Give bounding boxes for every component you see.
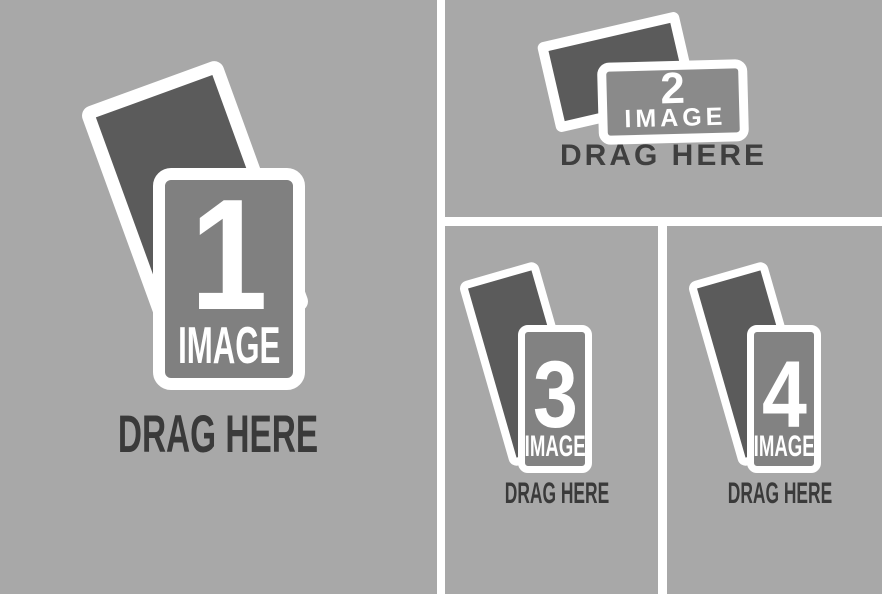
photo-front-frame-icon: 3 IMAGE <box>518 325 592 473</box>
image-label: IMAGE <box>624 105 727 133</box>
drag-here-label: DRAG HERE <box>445 139 882 173</box>
image-label: IMAGE <box>525 432 586 462</box>
zone-number: 1 <box>190 192 267 318</box>
zone-number: 3 <box>533 358 578 432</box>
photo-front-frame-icon: 1 IMAGE <box>153 168 305 390</box>
photo-front-frame-icon: 2 IMAGE <box>597 59 749 145</box>
image-label: IMAGE <box>754 432 815 462</box>
image-drop-zone-2[interactable]: 2 IMAGE DRAG HERE <box>445 0 882 217</box>
image-drop-zone-3[interactable]: 3 IMAGE DRAG HERE <box>445 226 658 594</box>
image-drop-zone-4[interactable]: 4 IMAGE DRAG HERE <box>667 226 882 594</box>
drag-here-label: DRAG HERE <box>680 477 880 511</box>
zone-number: 2 <box>660 71 685 107</box>
collage-template: 1 IMAGE DRAG HERE 2 IMAGE DRAG HERE 3 IM… <box>0 0 882 594</box>
drag-here-label: DRAG HERE <box>0 404 437 465</box>
drag-here-label: DRAG HERE <box>457 477 657 511</box>
zone-number: 4 <box>762 358 807 432</box>
image-drop-zone-1[interactable]: 1 IMAGE DRAG HERE <box>0 0 437 594</box>
image-label: IMAGE <box>178 320 280 372</box>
photo-front-frame-icon: 4 IMAGE <box>747 325 821 473</box>
